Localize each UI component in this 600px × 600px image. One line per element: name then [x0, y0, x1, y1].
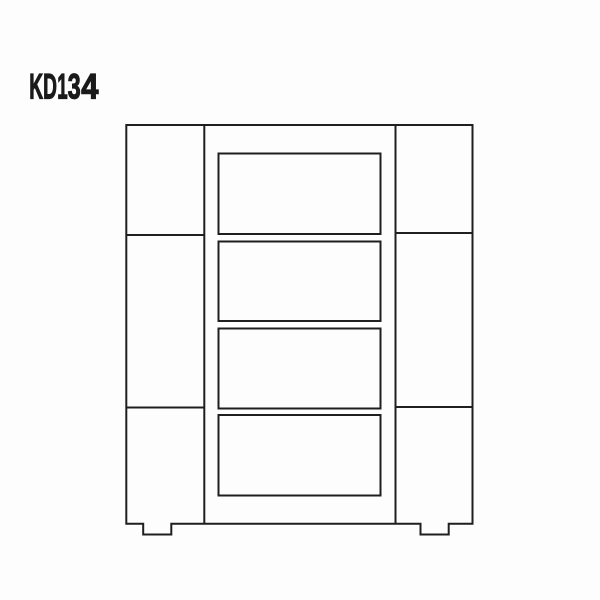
svg-text:K: K [29, 68, 43, 107]
svg-text:D: D [43, 68, 57, 107]
svg-text:1: 1 [57, 68, 67, 107]
svg-text:3: 3 [68, 68, 81, 107]
svg-text:4: 4 [81, 68, 99, 107]
